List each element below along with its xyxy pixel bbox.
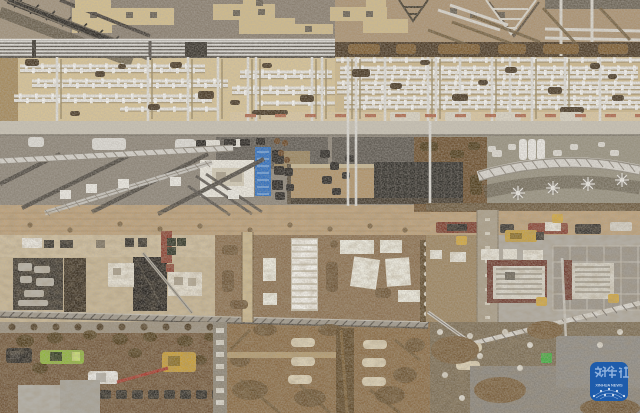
svg-text:XINHUA NEWS: XINHUA NEWS: [595, 383, 623, 388]
